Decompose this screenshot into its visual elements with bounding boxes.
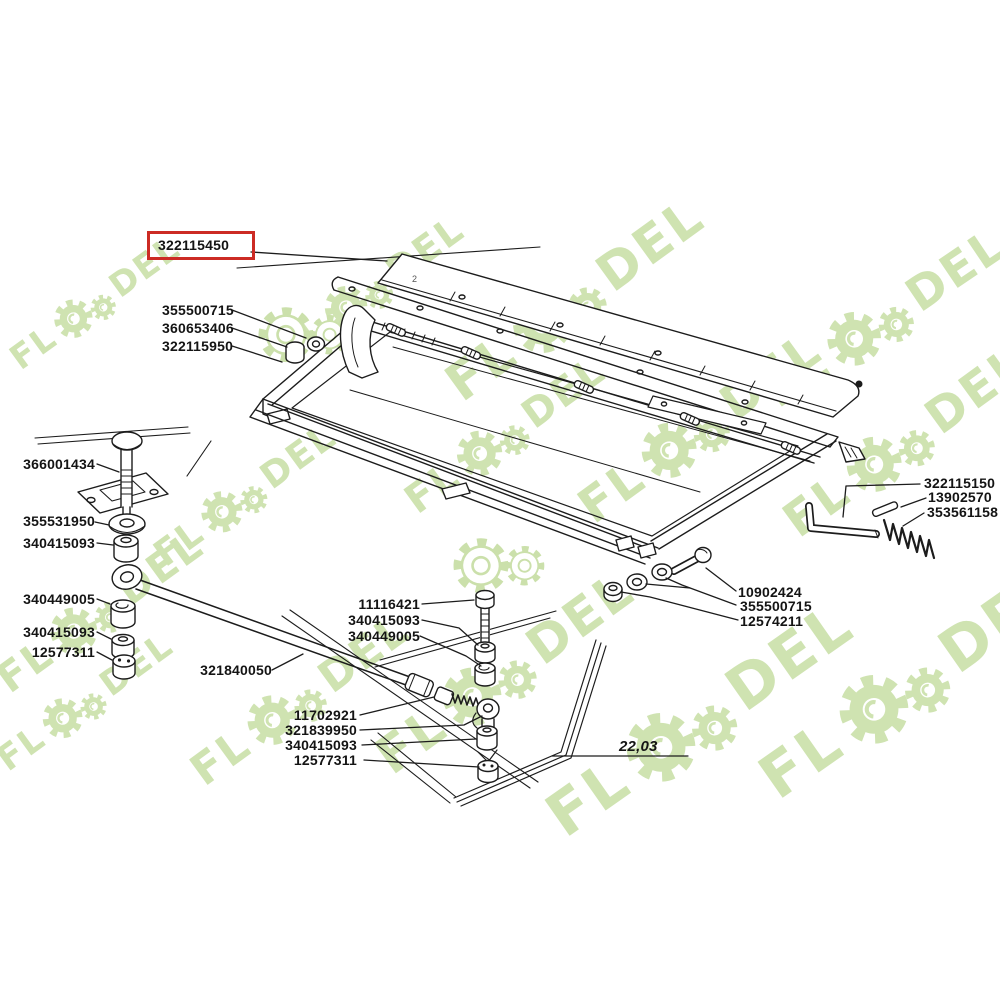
lower-right-hardware xyxy=(604,548,711,602)
buffer-cap-and-washer xyxy=(286,337,325,363)
part-number-label: 11702921 xyxy=(294,708,357,723)
blade-mark: 2 xyxy=(412,272,417,287)
parts-diagram-image: FL DEL FL DEL FL DEL FL DEL FL DEL FL DE… xyxy=(0,0,1000,1000)
part-number-label: 340415093 xyxy=(23,536,95,551)
part-number-label: 360653406 xyxy=(162,321,234,336)
part-number-label: 13902570 xyxy=(928,490,992,505)
part-number-label: 366001434 xyxy=(23,457,95,472)
part-number-label: 12574211 xyxy=(740,614,803,629)
part-number-label: 340415093 xyxy=(23,625,95,640)
part-number-label: 340415093 xyxy=(348,613,420,628)
part-number-label: 340449005 xyxy=(348,629,420,644)
part-number-label: 321840050 xyxy=(200,663,272,678)
part-number-label: 12577311 xyxy=(294,753,357,768)
part-number-label: 322115950 xyxy=(162,339,233,354)
highlight-box: 322115450 xyxy=(147,231,255,260)
part-number-label: 11116421 xyxy=(358,597,420,612)
part-number-label: 12577311 xyxy=(32,645,95,660)
part-number-label: 355531950 xyxy=(23,514,95,529)
exploded-view-drawing xyxy=(0,0,1000,1000)
part-number-label: 340415093 xyxy=(285,738,357,753)
part-number-highlighted: 322115450 xyxy=(158,238,229,253)
part-number-label: 340449005 xyxy=(23,592,95,607)
reference-note: 22,03 xyxy=(619,739,658,754)
right-assembly xyxy=(809,501,934,558)
part-number-label: 355500715 xyxy=(740,599,812,614)
part-number-label: 355500715 xyxy=(162,303,234,318)
blade-panel xyxy=(378,254,863,417)
left-assembly xyxy=(78,432,410,685)
part-number-label: 321839950 xyxy=(285,723,357,738)
part-number-label: 353561158 xyxy=(927,505,998,520)
